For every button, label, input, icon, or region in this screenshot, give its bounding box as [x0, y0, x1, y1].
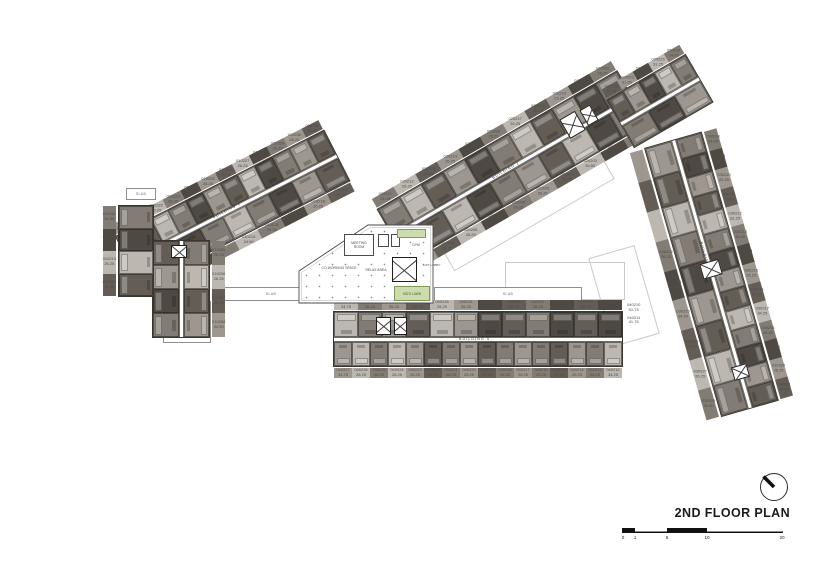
scale-tick: 1 — [634, 535, 637, 540]
unit-cell — [334, 342, 352, 367]
unit-label: 03022026.25 — [770, 357, 788, 380]
unit-cell — [119, 206, 153, 229]
unit-cell — [574, 312, 598, 337]
unit-label: 01021134.50 — [103, 206, 116, 229]
unit-cell — [568, 342, 586, 367]
unit-label: 03021426.25 — [737, 243, 755, 266]
unit-cell — [454, 312, 478, 337]
unit-label: 01021326.25 — [103, 251, 116, 274]
unit-label: 04021826.25 — [496, 368, 514, 378]
unit-cell — [460, 342, 478, 367]
unit-cell — [153, 265, 179, 289]
unit-cell — [496, 342, 514, 367]
unit-cell — [334, 312, 358, 337]
unit-cell — [153, 289, 179, 313]
unit-label: 03021026.25 — [715, 166, 733, 189]
meeting-room: MEETING ROOM — [344, 234, 374, 256]
walkway-slab: SLAB — [434, 287, 582, 301]
scale-bar: 0 1 5 10 20 — [622, 528, 783, 544]
unit-cell — [430, 312, 454, 337]
unit-label: 03021126.25 — [720, 185, 738, 208]
unit-label: 01020834.50 — [212, 313, 225, 337]
unit-label: 03020834.05 — [704, 128, 722, 151]
b4-labels-bottom: 04022734.7504022626.2504022526.250402242… — [334, 368, 622, 378]
scale-tick: 10 — [704, 535, 709, 540]
unit-label: 03021734.25 — [753, 300, 771, 323]
building-1-vertical-wing: 01020526.2501020626.2501020726.250102083… — [152, 240, 210, 338]
wc-room — [378, 234, 389, 247]
unit-label: 04021926.25 — [478, 368, 496, 378]
unit-label: 04022026.25 — [460, 368, 478, 378]
unit-cell — [119, 274, 153, 297]
unit-label: 01021434.50 — [103, 274, 116, 297]
coworking-label: CO-WORKING SPACE — [318, 266, 360, 270]
unit-label: 04021626.25 — [532, 368, 550, 378]
unit-label: 04021526.25 — [550, 368, 568, 378]
unit-label: 04021426.25 — [568, 368, 586, 378]
unit-label: 04022426.25 — [388, 368, 406, 378]
unit-cell — [184, 241, 210, 265]
unit-label: 04022126.25 — [442, 368, 460, 378]
unit-cell — [388, 342, 406, 367]
slab-label: SLAB — [266, 292, 276, 296]
unit-cell — [406, 342, 424, 367]
unit-label: 01021226.25 — [103, 229, 116, 252]
unit-cell — [550, 342, 568, 367]
scale-tick: 20 — [779, 535, 784, 540]
unit-label: 04021051.75 — [627, 303, 640, 313]
unit-label: 03020926.25 — [709, 147, 727, 170]
b1-vert-units-right — [184, 241, 210, 337]
kids-lawn-label: KID'S LAWN — [403, 292, 421, 296]
unit-label: 04023826.25 — [550, 300, 574, 310]
slab-label: SLAB — [503, 292, 513, 296]
unit-label: 04022226.25 — [424, 368, 442, 378]
unit-label: 04023926.25 — [574, 300, 598, 310]
unit-label: 04023626.25 — [502, 300, 526, 310]
stair-lift-core — [394, 317, 407, 335]
b1-leftcol-labels: 01021134.5001021226.2501021326.250102143… — [103, 206, 116, 296]
unit-label: 04022734.75 — [334, 368, 352, 378]
b1-leftcol-units — [119, 206, 153, 296]
unit-cell — [502, 312, 526, 337]
unit-cell — [526, 312, 550, 337]
unit-cell — [478, 342, 496, 367]
scale-bar-segments — [622, 528, 783, 533]
unit-label: 03021926.25 — [764, 338, 782, 361]
unit-label: 04022526.25 — [370, 368, 388, 378]
unit-label: 03022144.75 — [775, 376, 793, 399]
relax-area-label: RELAX AREA — [356, 268, 396, 272]
scale-tick: 0 — [622, 535, 625, 540]
scale-tick: 5 — [666, 535, 669, 540]
unit-cell — [119, 229, 153, 252]
slab-label: SLAB — [136, 192, 146, 196]
building-4-name: BUILDING 4 — [459, 337, 490, 341]
unit-label: 04021141.75 — [627, 316, 640, 326]
unit-label: 03021334.25 — [731, 224, 749, 247]
page-title: 2ND FLOOR PLAN — [620, 506, 790, 520]
unit-cell — [153, 313, 179, 337]
lift-lobby-label: LIFT LOBBY — [420, 264, 444, 268]
unit-label: 01020626.25 — [212, 265, 225, 289]
slab-area: SLAB — [126, 188, 156, 200]
unit-label: 04021726.25 — [514, 368, 532, 378]
unit-cell — [406, 312, 430, 337]
gym-label: GYM — [396, 243, 436, 247]
unit-cell — [184, 265, 210, 289]
unit-cell — [532, 342, 550, 367]
unit-cell — [604, 342, 622, 367]
unit-label: 04023426.25 — [454, 300, 478, 310]
unit-cell — [119, 251, 153, 274]
floor-plan-canvas: SLAB SLAB SLAB SLAB 01022026.2501022126.… — [0, 0, 823, 582]
unit-cell — [550, 312, 574, 337]
building-4-wing: 04022934.7504023026.2504023126.250402322… — [333, 311, 623, 367]
unit-cell — [442, 342, 460, 367]
building-1-left-column: 01021134.5001021226.2501021326.250102143… — [118, 205, 154, 297]
planter-strip — [397, 229, 426, 238]
unit-label: 03021526.25 — [742, 262, 760, 285]
unit-cell — [424, 342, 442, 367]
unit-cell — [586, 342, 604, 367]
unit-label: 03021626.25 — [748, 281, 766, 304]
meeting-room-label: MEETING ROOM — [348, 241, 370, 250]
unit-cell — [184, 289, 210, 313]
building-3-wing: 03022326.2503022426.2503022534.500302262… — [644, 131, 779, 417]
unit-cell — [598, 312, 622, 337]
unit-cell — [370, 342, 388, 367]
unit-label: 04021326.25 — [586, 368, 604, 378]
unit-cell — [478, 312, 502, 337]
unit-cell — [514, 342, 532, 367]
kids-lawn: KID'S LAWN — [394, 286, 430, 301]
unit-label: 04023726.25 — [526, 300, 550, 310]
stair-lift-core — [376, 317, 391, 335]
b4-end-unit-labels: 04021051.7504021141.75 — [627, 303, 640, 325]
unit-label: 04022626.25 — [352, 368, 370, 378]
unit-label: 04021234.25 — [604, 368, 622, 378]
b4-units-bottom — [334, 342, 622, 367]
north-arrow-icon — [752, 466, 796, 510]
unit-cell — [184, 313, 210, 337]
unit-label: 03021826.25 — [759, 319, 777, 342]
amenity-lift-core — [392, 257, 417, 282]
unit-label: 03021226.25 — [726, 205, 744, 228]
unit-label: 04023526.25 — [478, 300, 502, 310]
unit-label: 04022326.25 — [406, 368, 424, 378]
stair-lift-core — [171, 245, 187, 258]
unit-cell — [352, 342, 370, 367]
